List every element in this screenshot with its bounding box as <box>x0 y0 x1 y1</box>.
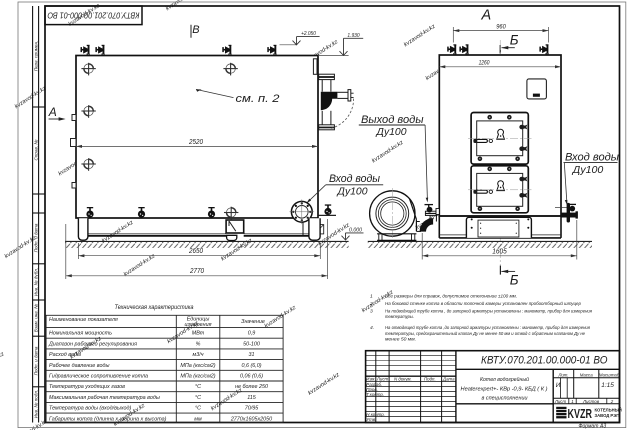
svg-text:Расход воды: Расход воды <box>49 352 81 358</box>
svg-text:Температура уходящих газов: Температура уходящих газов <box>49 384 125 390</box>
svg-text:Утв.: Утв. <box>366 417 376 422</box>
svg-text:2: 2 <box>369 301 373 307</box>
svg-text:3: 3 <box>370 309 373 315</box>
svg-text:Формат: Формат <box>579 423 599 429</box>
svg-text:Техническая характеристика: Техническая характеристика <box>115 304 194 311</box>
svg-text:И: И <box>556 382 561 389</box>
svg-text:Ду100: Ду100 <box>376 126 407 138</box>
svg-text:2650: 2650 <box>188 248 203 255</box>
svg-text:Диапазон рабочего регулировани: Диапазон рабочего регулирования <box>48 341 137 347</box>
svg-text:0,06 (0,6): 0,06 (0,6) <box>240 374 263 380</box>
svg-text:Подп.: Подп. <box>424 376 436 381</box>
svg-text:0,6 (6,0): 0,6 (6,0) <box>241 363 261 369</box>
svg-text:4.: 4. <box>370 325 374 331</box>
svg-text:Т.контр.: Т.контр. <box>366 392 384 397</box>
svg-text:50-100: 50-100 <box>243 341 260 347</box>
svg-text:измерения: измерения <box>185 322 212 328</box>
svg-text:не более 250: не более 250 <box>235 384 268 390</box>
svg-text:Масштаб: Масштаб <box>599 373 620 378</box>
svg-text:Взам. инв. №: Взам. инв. № <box>34 304 39 332</box>
svg-text:2770х1605х2050: 2770х1605х2050 <box>230 416 272 422</box>
svg-text:ЗАВОД РЭП: ЗАВОД РЭП <box>595 413 620 418</box>
svg-text:мм: мм <box>194 416 202 422</box>
svg-text:Вход воды: Вход воды <box>565 152 619 164</box>
svg-text:KVZR: KVZR <box>568 407 593 421</box>
svg-text:А: А <box>481 7 492 23</box>
svg-text:70/95: 70/95 <box>245 406 259 412</box>
svg-text:Б: Б <box>510 33 519 48</box>
svg-text:Листов: Листов <box>582 399 600 404</box>
svg-text:2770: 2770 <box>189 268 204 275</box>
svg-text:см. п. 2: см. п. 2 <box>236 93 280 105</box>
svg-text:КОТЕЛЬНЫЙ: КОТЕЛЬНЫЙ <box>595 408 622 413</box>
svg-text:На отводящей трубе котла ,до з: На отводящей трубе котла ,до запорной ар… <box>385 324 590 331</box>
svg-text:Справ. №: Справ. № <box>34 140 39 161</box>
svg-text:температуры.: температуры. <box>385 315 414 320</box>
svg-text:Рабочее давление воды: Рабочее давление воды <box>49 363 109 369</box>
svg-text:КВТУ.070.201.00.000-01 ВО: КВТУ.070.201.00.000-01 ВО <box>48 11 140 20</box>
svg-text:Перв. примен.: Перв. примен. <box>34 41 39 72</box>
svg-text:Котел водогрейный: Котел водогрейный <box>480 376 529 383</box>
svg-text:Гидравлическое сопротивление к: Гидравлическое сопротивление котла <box>49 374 148 380</box>
svg-text:31: 31 <box>249 352 255 358</box>
svg-text:менее 50 мм.: менее 50 мм. <box>385 337 416 343</box>
svg-text:Максимальная рабочая температу: Максимальная рабочая температура воды <box>49 395 160 401</box>
svg-text:Значение: Значение <box>241 319 265 325</box>
svg-text:1.930: 1.930 <box>347 33 360 39</box>
svg-text:МПа (кгс/см2): МПа (кгс/см2) <box>180 363 215 369</box>
svg-text:Лист: Лист <box>554 399 567 404</box>
svg-text:МВт: МВт <box>192 331 205 337</box>
svg-text:Ду100: Ду100 <box>572 164 604 176</box>
svg-text:1: 1 <box>370 294 373 300</box>
svg-text:1605: 1605 <box>492 248 507 255</box>
svg-text:В: В <box>192 24 199 36</box>
svg-text:А: А <box>48 105 57 119</box>
svg-text:Ду100: Ду100 <box>337 186 368 198</box>
svg-text:°С: °С <box>195 395 201 401</box>
svg-text:Вход воды: Вход воды <box>329 173 380 185</box>
svg-text:115: 115 <box>247 395 257 401</box>
svg-text:На подводящей трубе котла ,: На подводящей трубе котла , до запорной … <box>385 308 592 315</box>
svg-text:Подп. и дата: Подп. и дата <box>34 223 39 252</box>
svg-text:°С: °С <box>195 384 201 390</box>
svg-text:На боковой стенке котла в обла: На боковой стенке котла в области топочн… <box>385 300 581 307</box>
svg-text:Дата: Дата <box>442 376 455 381</box>
svg-text:Лит.: Лит. <box>557 373 568 378</box>
svg-text:в специсполнении: в специсполнении <box>482 396 528 402</box>
svg-text:Выход воды: Выход воды <box>361 114 424 126</box>
svg-text:Подп. и дата: Подп. и дата <box>34 346 39 375</box>
svg-text:960: 960 <box>496 23 506 30</box>
svg-text:0,9: 0,9 <box>248 331 256 337</box>
svg-text:Все размеры для справок, допус: Все размеры для справок, допустимое откл… <box>385 294 517 300</box>
svg-text:Номинальная мощность: Номинальная мощность <box>49 331 112 337</box>
svg-text:Температура воды (вход/выход): Температура воды (вход/выход) <box>49 406 132 412</box>
svg-text:0.000: 0.000 <box>349 228 363 234</box>
svg-text:м3/ч: м3/ч <box>193 352 204 358</box>
svg-text:температуры, предохранительный: температуры, предохранительный клапан Ду… <box>385 330 585 337</box>
svg-text:1:15: 1:15 <box>601 382 614 389</box>
svg-text:+2.050: +2.050 <box>301 31 317 37</box>
svg-text:%: % <box>196 341 201 347</box>
svg-text:Изм. Лист: Изм. Лист <box>366 376 388 381</box>
svg-text:°С: °С <box>195 406 201 412</box>
svg-text:N докум.: N докум. <box>394 376 412 381</box>
svg-text:Габариты котла (длинна х ширин: Габариты котла (длинна х ширина х высота… <box>49 416 167 422</box>
svg-text:1260: 1260 <box>479 59 490 66</box>
svg-text:2520: 2520 <box>188 139 203 146</box>
svg-text:Наименование показателя: Наименование показателя <box>49 317 118 323</box>
svg-text:Масса: Масса <box>580 373 594 378</box>
svg-text:А3: А3 <box>599 423 606 429</box>
svg-text:МПа (кгс/см2): МПа (кгс/см2) <box>180 374 215 380</box>
svg-text:Инв. № дубл.: Инв. № дубл. <box>34 268 39 296</box>
svg-text:КВТУ.070.201.00.000-01 ВО: КВТУ.070.201.00.000-01 ВО <box>481 355 608 367</box>
svg-text:2: 2 <box>610 399 614 404</box>
svg-text:Инв. № подл.: Инв. № подл. <box>34 390 39 419</box>
svg-text:Heaterexpert+- КВр -0,9- КБД (: Heaterexpert+- КВр -0,9- КБД ( К ) <box>461 386 548 392</box>
svg-text:Б: Б <box>510 273 519 288</box>
